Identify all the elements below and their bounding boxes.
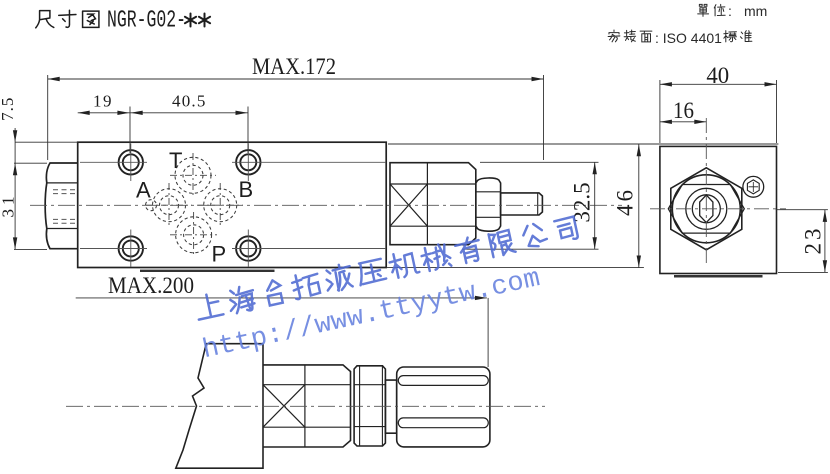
svg-text:A: A [136, 178, 151, 203]
svg-text:T: T [169, 148, 182, 173]
svg-text:23: 23 [801, 226, 826, 255]
svg-text:MAX.172: MAX.172 [252, 54, 336, 80]
svg-text:7.5: 7.5 [0, 97, 17, 121]
svg-text:P: P [212, 242, 227, 267]
svg-text:46: 46 [613, 187, 638, 216]
svg-text:mm: mm [744, 3, 767, 19]
svg-text:NGR-G02-: NGR-G02- [107, 8, 186, 35]
svg-text:http://www.ttyytw.com: http://www.ttyytw.com [200, 264, 543, 366]
svg-text:19: 19 [93, 92, 113, 111]
svg-text:40: 40 [706, 63, 729, 88]
svg-text:31: 31 [0, 193, 18, 218]
svg-text:40.5: 40.5 [172, 92, 207, 111]
svg-text:: ISO 4401: : ISO 4401 [655, 30, 722, 46]
svg-text:16: 16 [673, 98, 694, 123]
svg-text::: : [728, 3, 732, 19]
svg-text:B: B [239, 177, 254, 202]
svg-text:MAX.200: MAX.200 [108, 273, 194, 299]
